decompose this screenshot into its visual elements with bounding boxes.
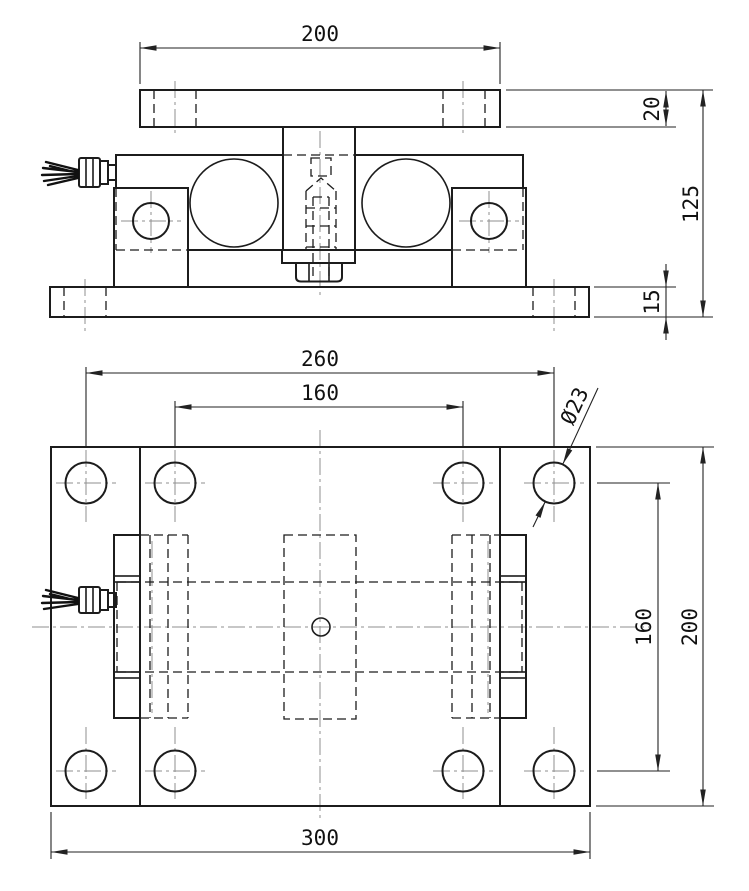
dim-text-inner-bolt-spacing: 160 xyxy=(301,381,339,405)
dim-text-base-plate-thickness: 15 xyxy=(640,289,664,314)
side-view-centerlines xyxy=(85,81,554,333)
side-view-geometry xyxy=(42,90,589,317)
dim-text-plate-depth: 200 xyxy=(678,608,702,646)
dim-base-plate-width: 300 xyxy=(51,812,590,859)
center-pillar xyxy=(283,127,355,250)
load-cell-bore-right xyxy=(362,159,450,247)
dim-inner-bolt-spacing: 160 xyxy=(175,381,463,446)
base-plate xyxy=(50,287,589,317)
plan-view-dimensions: 260 160 Ø23 160 200 xyxy=(51,347,714,859)
cable-gland-side xyxy=(42,158,116,187)
dim-text-row-spacing: 160 xyxy=(632,608,656,646)
dim-hole-diameter: Ø23 xyxy=(533,384,598,527)
base-plate-hidden-holes xyxy=(64,287,575,317)
cable-strands xyxy=(42,162,78,185)
center-bolt-hidden xyxy=(306,158,336,277)
plan-view: 260 160 Ø23 160 200 xyxy=(32,347,714,859)
plan-view-centerlines xyxy=(32,430,650,822)
side-view: 200 20 125 15 xyxy=(42,22,713,340)
dim-text-top-plate-thickness: 20 xyxy=(640,96,664,121)
hex-nut xyxy=(296,263,342,282)
dim-text-hole-diameter: Ø23 xyxy=(556,384,594,429)
dim-text-base-plate-width: 300 xyxy=(301,826,339,850)
cable-gland-plan xyxy=(42,587,116,613)
technical-drawing-canvas: 200 20 125 15 xyxy=(0,0,749,891)
dim-base-plate-thickness: 15 xyxy=(594,264,713,340)
bolt-flange xyxy=(282,250,355,263)
dim-top-plate-thickness: 20 xyxy=(506,90,713,127)
top-plate-hidden-holes xyxy=(154,90,485,127)
cable-strands-plan xyxy=(42,590,78,609)
technical-drawing-page: 200 20 125 15 xyxy=(0,0,749,891)
top-plate xyxy=(140,90,500,127)
dim-overall-height: 125 xyxy=(679,90,703,317)
dim-text-top-plate-width: 200 xyxy=(301,22,339,46)
side-view-dimensions: 200 20 125 15 xyxy=(140,22,713,340)
dim-text-overall-height: 125 xyxy=(679,185,703,223)
dim-text-outer-bolt-spacing: 260 xyxy=(301,347,339,371)
dim-top-plate-width: 200 xyxy=(140,22,500,84)
load-cell-bore-left xyxy=(190,159,278,247)
